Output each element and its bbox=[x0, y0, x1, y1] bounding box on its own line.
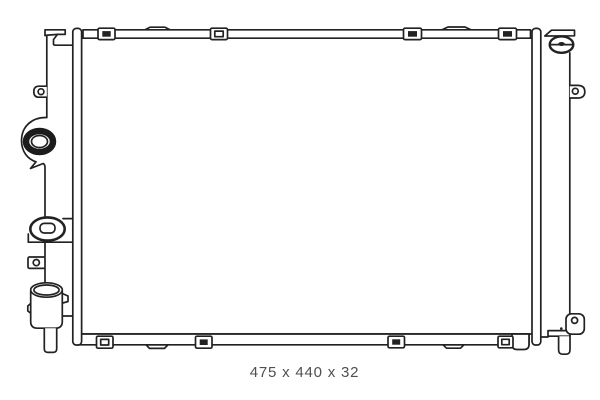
clip bbox=[211, 28, 228, 39]
bottom-right-foot bbox=[512, 334, 529, 350]
hose-port-ring bbox=[26, 131, 53, 152]
left-core-side-plate bbox=[73, 28, 82, 345]
clip bbox=[498, 336, 513, 348]
outlet-cylinder bbox=[28, 283, 73, 353]
bracket-leg bbox=[559, 336, 570, 354]
radiator-core bbox=[82, 38, 533, 334]
upper-mount-tab bbox=[34, 86, 47, 97]
clip bbox=[97, 336, 114, 348]
left-tank bbox=[22, 30, 73, 353]
bottom-header-plate bbox=[77, 334, 529, 350]
right-core-side-plate bbox=[532, 28, 541, 345]
rubber-grommet bbox=[30, 217, 64, 240]
filler-cap bbox=[545, 30, 575, 53]
right-tank bbox=[541, 30, 585, 354]
dimensions-caption: 475 x 440 x 32 bbox=[0, 364, 600, 381]
top-mount-tab bbox=[45, 30, 65, 36]
product-image: 475 x 440 x 32 bbox=[0, 0, 600, 400]
bottom-right-bracket bbox=[541, 314, 584, 354]
top-header-plate bbox=[83, 27, 531, 38]
drain-stem bbox=[44, 328, 56, 352]
radiator-line-drawing bbox=[0, 0, 600, 400]
